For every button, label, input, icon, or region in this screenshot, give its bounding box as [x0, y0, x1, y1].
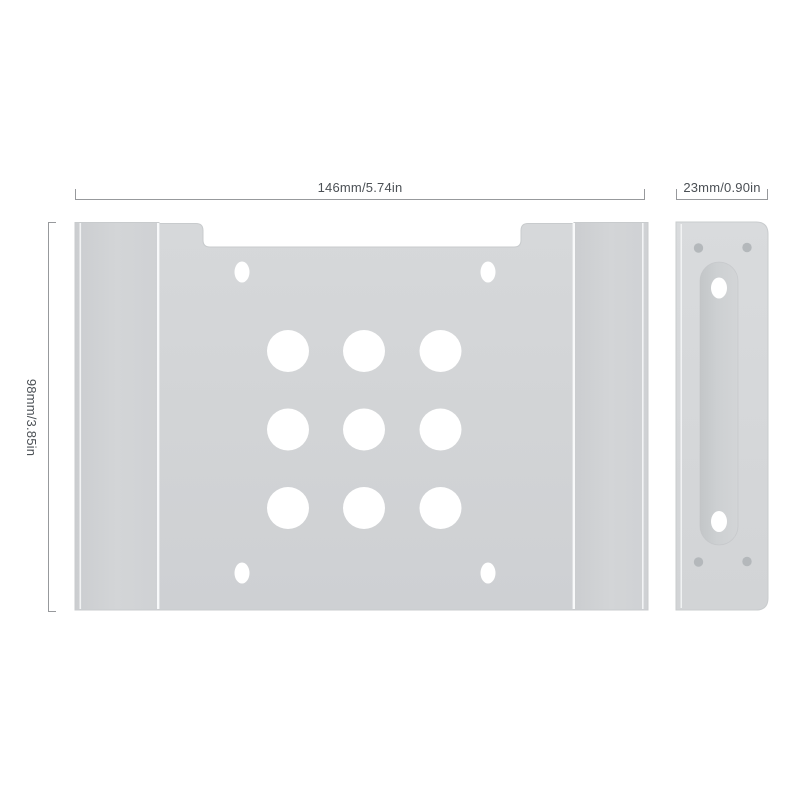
screw-hole: [694, 243, 703, 252]
vent-hole: [343, 409, 385, 451]
vent-hole: [420, 487, 462, 529]
slot-hole: [711, 278, 727, 299]
vent-hole: [343, 487, 385, 529]
slot-hole: [481, 563, 496, 584]
main-bracket: [75, 223, 648, 611]
slot-hole: [481, 262, 496, 283]
side-bracket: [676, 222, 768, 610]
slot-hole: [711, 511, 727, 532]
screw-hole: [694, 557, 703, 566]
vent-hole: [267, 330, 309, 372]
product-dimension-diagram: 146mm/5.74in 23mm/0.90in 98mm/3.85in: [0, 0, 800, 800]
side-bracket-highlight-line: [681, 224, 683, 608]
screw-hole: [742, 557, 751, 566]
vent-hole: [420, 409, 462, 451]
side-bracket-recess-channel: [700, 262, 738, 545]
screw-hole: [742, 243, 751, 252]
vent-hole: [343, 330, 385, 372]
main-bracket-right-rail: [574, 223, 648, 611]
vent-hole: [267, 409, 309, 451]
main-bracket-left-rail: [75, 223, 159, 611]
slot-hole: [235, 563, 250, 584]
bracket-drawing: [0, 0, 800, 800]
vent-hole: [267, 487, 309, 529]
vent-hole: [420, 330, 462, 372]
slot-hole: [235, 262, 250, 283]
